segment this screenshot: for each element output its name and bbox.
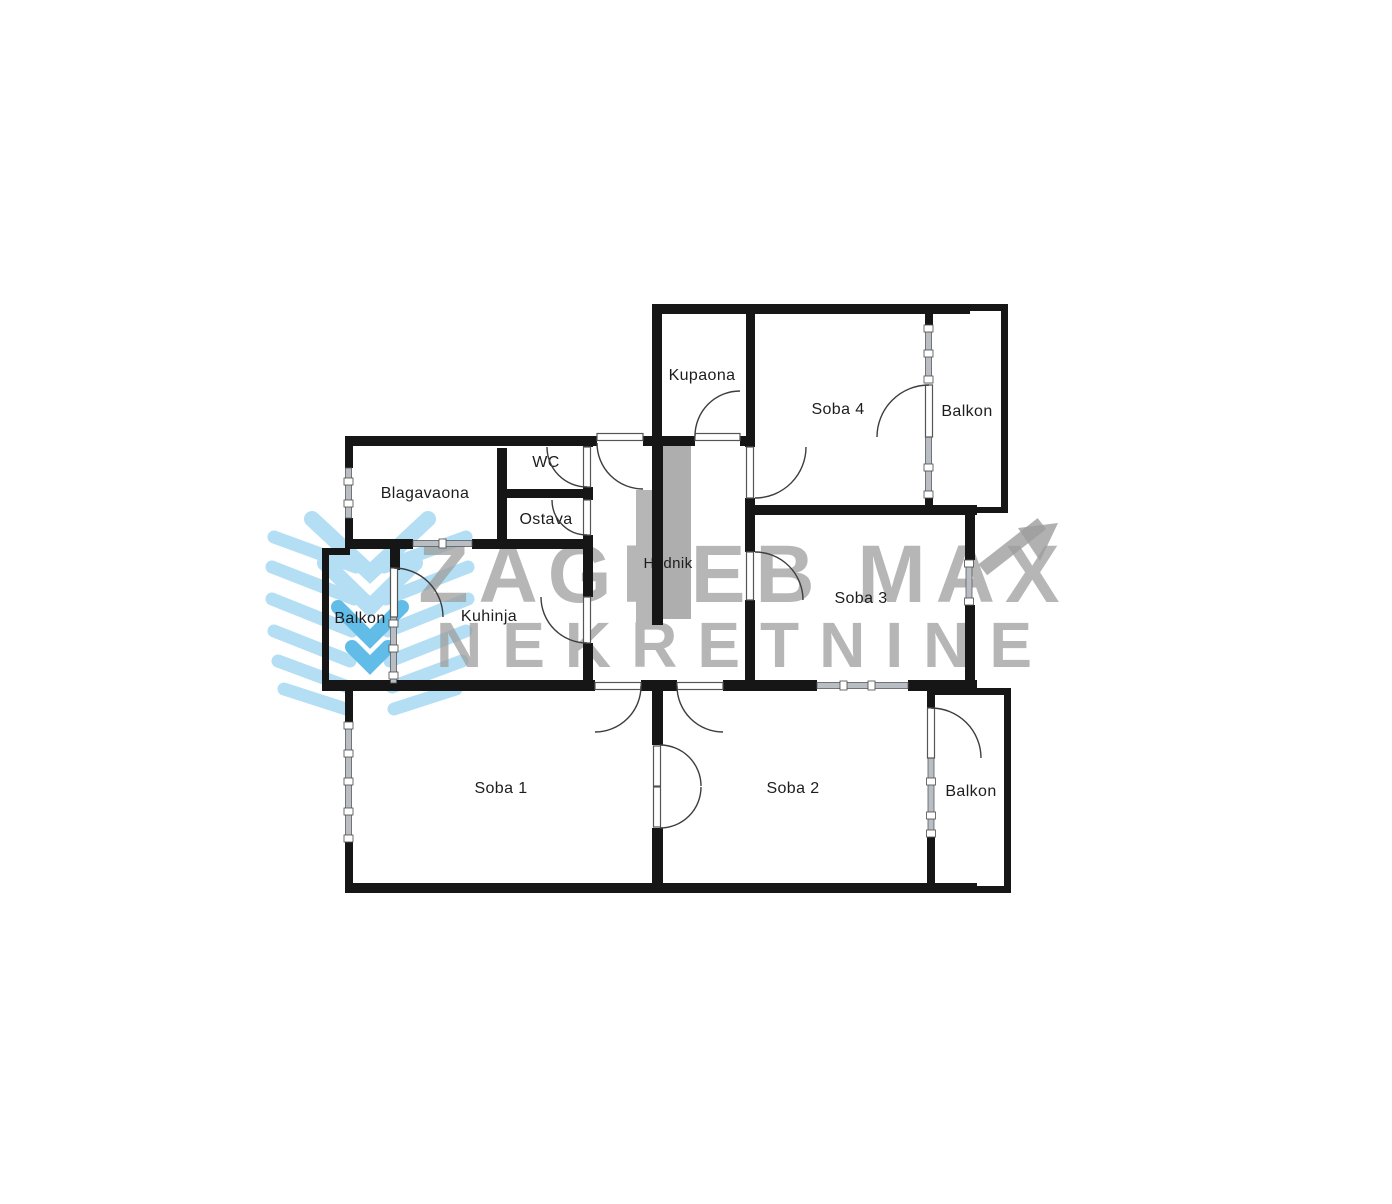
door-soba2 <box>677 683 723 733</box>
room-label-wc: WC <box>532 454 559 471</box>
room-label-soba1: Soba 1 <box>474 780 527 797</box>
watermark-line2: NEKRETNINE <box>436 609 1052 681</box>
room-label-blagavaona: Blagavaona <box>381 485 470 502</box>
window-soba3-soba2 <box>817 681 908 690</box>
room-label-balkon-top-right: Balkon <box>941 403 992 420</box>
hallway-closets <box>636 445 691 625</box>
door-kupaona <box>695 391 740 441</box>
window-blagavaona <box>344 468 353 518</box>
window-kuhinja-balkon <box>389 615 398 683</box>
room-label-balkon-bottom-right: Balkon <box>945 783 996 800</box>
floor-plan: ZAGREB MAX NEKRETNINE Kupaona Soba 4 Bal… <box>0 0 1392 1204</box>
window-pass-through <box>413 539 472 548</box>
window-soba2-balkon <box>927 758 936 837</box>
room-label-kupaona: Kupaona <box>669 367 736 384</box>
door-entry <box>597 434 643 490</box>
room-label-ostava: Ostava <box>519 511 572 528</box>
door-balkon-soba4 <box>877 385 933 437</box>
room-label-soba3: Soba 3 <box>834 590 887 607</box>
room-label-soba4: Soba 4 <box>811 401 864 418</box>
room-label-soba2: Soba 2 <box>766 780 819 797</box>
door-balkon-soba2 <box>928 708 982 758</box>
room-label-hodnik: Hodnik <box>643 555 692 572</box>
door-soba4 <box>747 447 807 498</box>
floor-plan-page: ZAGREB MAX NEKRETNINE Kupaona Soba 4 Bal… <box>0 0 1392 1204</box>
window-soba1 <box>344 722 353 842</box>
room-label-kuhinja: Kuhinja <box>461 608 517 625</box>
closet-right <box>663 445 691 619</box>
door-soba1 <box>595 683 641 733</box>
window-soba3 <box>965 560 974 605</box>
room-label-balkon-left: Balkon <box>334 610 385 627</box>
door-french-soba1-soba2 <box>654 745 702 828</box>
